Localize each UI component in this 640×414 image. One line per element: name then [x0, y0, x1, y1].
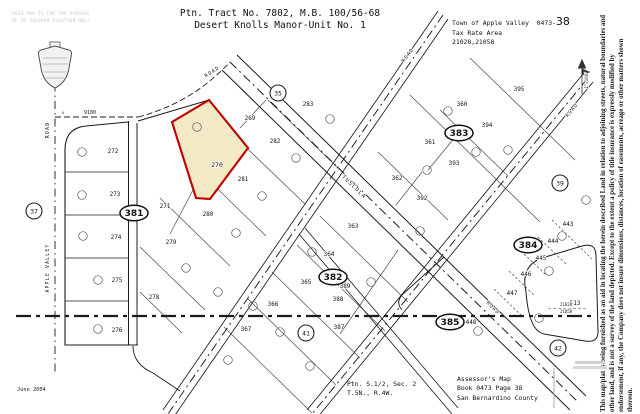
parcel-label: 274 — [111, 234, 122, 241]
lot-index-circle — [232, 229, 241, 238]
road-name-label: ROAD — [565, 102, 580, 119]
parcel-label: 276 — [112, 327, 123, 334]
road-name-label: ROAD — [485, 300, 501, 316]
parcel-label: 360 — [457, 101, 468, 108]
parcel-label: 395 — [514, 86, 525, 93]
block-number-label: 383 — [450, 129, 469, 139]
parcel-label: 366 — [268, 301, 279, 308]
parcel-label: 367 — [241, 326, 252, 333]
parcel-label: 365 — [301, 279, 312, 286]
lot-index-circle — [276, 328, 285, 337]
parcel-label: 281 — [238, 176, 249, 183]
block-number-label: 381 — [125, 209, 144, 219]
map-annotation: x — [62, 110, 65, 115]
lot-index-circle — [94, 325, 103, 334]
lot-index-circle — [558, 232, 567, 241]
lot-index-circle — [79, 232, 88, 241]
lot-index-circle — [78, 191, 87, 200]
parcel-label: 388 — [333, 296, 344, 303]
diagonal-road-1-edge-e — [173, 19, 448, 414]
parcel-label: 361 — [425, 139, 436, 146]
parcel-label: 445 — [536, 255, 547, 262]
lot-index-circle — [444, 107, 453, 116]
lot-index-circle — [306, 362, 315, 371]
assessor-line2: Book 0473 Page 38 — [457, 384, 522, 392]
highlighted-parcel-270[interactable] — [172, 100, 248, 199]
tax-rate-label: Tax Rate Area — [452, 29, 502, 37]
lot-index-circle — [472, 148, 481, 157]
assessor-credit-block: Assessor's MapBook 0473 Page 38San Berna… — [457, 375, 538, 403]
agency-name: Town of Apple Valley — [452, 19, 529, 27]
parcel-label: 364 — [324, 251, 335, 258]
lot-index-circle — [367, 278, 376, 287]
parcel-label: 271 — [160, 203, 171, 210]
township-line: T.5N., R.4W. — [347, 389, 393, 397]
lot-index-circle — [545, 267, 554, 276]
parcel-label: 394 — [482, 122, 493, 129]
road-name-label: ROAD — [401, 47, 416, 64]
road-name-label: ROAD — [45, 122, 51, 139]
lot-index-circle — [326, 115, 335, 124]
map-annotation: 21028 — [560, 302, 573, 307]
parcel-label: 387 — [334, 324, 345, 331]
lot-index-circle — [214, 288, 223, 297]
map-annotation: 9100 — [84, 110, 96, 116]
section-line: Ptn. S.1/2, Sec. 2 — [347, 380, 416, 388]
street-number-label: 41 — [302, 329, 310, 337]
title-insurance-disclaimer: This map/plat is being furnished as an a… — [599, 14, 635, 412]
left-block-outline — [65, 122, 138, 345]
street-number-label: 35 — [274, 89, 282, 97]
map-annotation: 1"=100' — [584, 72, 589, 89]
street-number-label: 37 — [30, 207, 38, 215]
parcel-label: 278 — [149, 294, 160, 301]
lot-index-circle — [504, 146, 513, 155]
title-line2: Desert Knolls Manor-Unit No. 1 — [194, 20, 366, 31]
county-seal-icon — [38, 42, 71, 88]
lot-index-circle — [78, 148, 87, 157]
taxation-note: THIS MAP IS FOR THE PURPOSEOF AD VALOREM… — [12, 12, 90, 26]
road-name-label: APPLE VALLEY — [45, 243, 51, 292]
parcel-label: 446 — [521, 271, 532, 278]
taxation-note-line1: THIS MAP IS FOR THE PURPOSE — [12, 12, 90, 17]
title-line1: Ptn. Tract No. 7802, M.B. 100/56-68 — [180, 8, 380, 19]
assessor-line3: San Bernardino County — [457, 394, 538, 402]
parcel-label: 279 — [166, 239, 177, 246]
parcel-label: 269 — [245, 115, 256, 122]
map-annotation: 21058 — [560, 309, 573, 314]
parcel-label: 272 — [108, 148, 119, 155]
section-township-block: Ptn. S.1/2, Sec. 2T.5N., R.4W. — [347, 380, 416, 399]
map-code-prefix: 0473- — [537, 19, 556, 27]
illegible-stamp-mark — [575, 361, 605, 364]
tax-rate-block: Town of Apple Valley 0473-38Tax Rate Are… — [452, 14, 570, 47]
lot-index-circle — [474, 327, 483, 336]
parcel-label: 392 — [417, 195, 428, 202]
illegible-stamp-mark — [573, 366, 607, 369]
street-number-label: 39 — [556, 179, 564, 187]
highlight-parcel-label: 270 — [211, 161, 223, 169]
plat-map-canvas: 2702692712722732742752762782792802812822… — [0, 0, 640, 414]
map-date: June 2004 — [17, 387, 46, 393]
plat-map-page: 2702692712722732742752762782792802812822… — [0, 0, 640, 414]
parcel-label: 447 — [507, 290, 518, 297]
taxation-note-line2: OF AD VALOREM TAXATION ONLY — [12, 19, 90, 24]
interior-road-curve — [133, 346, 180, 391]
lot-index-circle — [292, 154, 301, 163]
parcel-label: 393 — [449, 160, 460, 167]
road-lines — [16, 11, 598, 414]
parcel-label: 363 — [348, 223, 359, 230]
map-code-suffix: 38 — [556, 15, 570, 28]
lot-index-circle — [94, 276, 103, 285]
lot-index-circle — [224, 356, 233, 365]
tuscola-road-centerline — [230, 62, 578, 402]
parcel-label: 273 — [110, 191, 121, 198]
parcel-label: 443 — [563, 221, 574, 228]
parcel-label: 283 — [303, 101, 314, 108]
parcel-label: 362 — [392, 175, 403, 182]
lot-index-circle — [258, 192, 267, 201]
parcel-label: 280 — [203, 211, 214, 218]
lot-index-circle — [182, 264, 191, 273]
parcel-label: 282 — [270, 138, 281, 145]
road-name-label: ROAD — [204, 65, 221, 79]
lot-index-circle — [423, 166, 432, 175]
map-labels-layer: 2702692712722732742752762782792802812822… — [26, 47, 590, 370]
street-number-label: 42 — [554, 344, 562, 352]
assessor-line1: Assessor's Map — [457, 375, 511, 383]
block-number-label: 384 — [519, 241, 538, 251]
parcel-label: 444 — [548, 238, 559, 245]
tax-rate-codes: 21028,21058 — [452, 38, 494, 46]
tuscola-road-edge-ne — [237, 55, 586, 396]
block-number-label: 385 — [441, 318, 460, 328]
parcel-label: 275 — [112, 277, 123, 284]
parcel-label: 448 — [466, 319, 477, 326]
lot-index-circle — [582, 196, 591, 205]
block-number-label: 382 — [324, 273, 343, 283]
map-title: Ptn. Tract No. 7802, M.B. 100/56-68Deser… — [120, 8, 440, 33]
